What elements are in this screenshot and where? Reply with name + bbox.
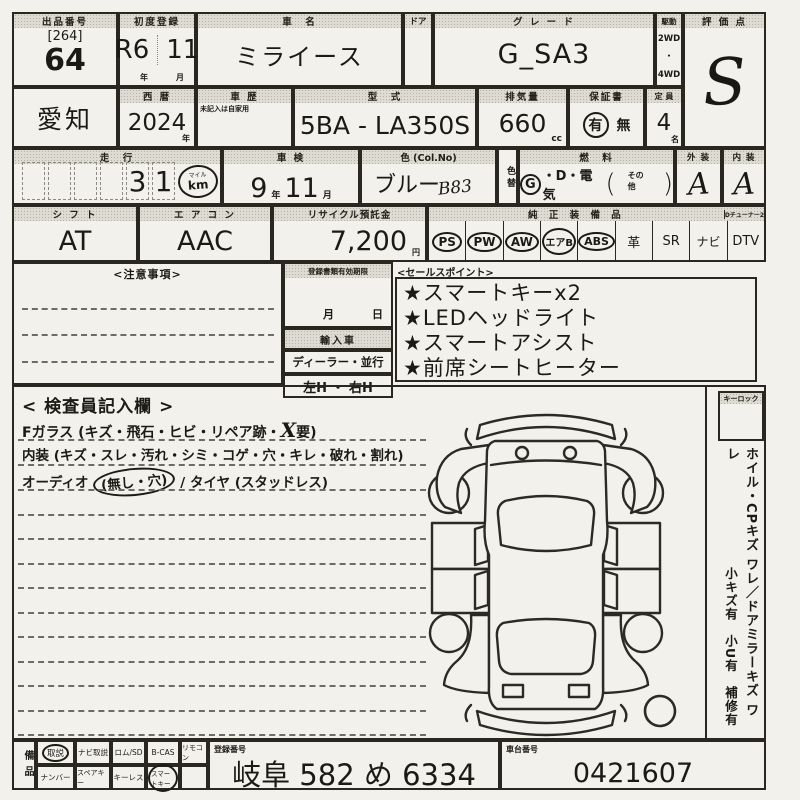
acc-number-plate: ナンバー xyxy=(36,765,75,790)
door-header: ドア xyxy=(405,14,431,28)
model-code: 5BA - LA350S xyxy=(295,103,475,147)
mileage-digit-box xyxy=(100,162,123,200)
aircon-header: エ ア コ ン xyxy=(140,207,270,221)
color-change-label: 色替 xyxy=(504,166,517,190)
km-unit-circle: マイル km xyxy=(177,163,219,199)
fuel-paren-open: ( xyxy=(605,169,615,199)
blank-rule xyxy=(18,710,426,712)
fuel-paren-close: ) xyxy=(663,169,673,199)
audio-circled-selection: (無し・穴) xyxy=(92,464,176,499)
car-name-header: 車 名 xyxy=(198,14,401,28)
displacement-cell: 排気量 660 cc xyxy=(477,87,568,148)
inspection-year: 9 xyxy=(250,173,267,204)
registration-number-header: 登録番号 xyxy=(214,744,246,755)
fuel-header: 燃 料 xyxy=(520,150,673,164)
equipment-header: 純 正 装 備 品 xyxy=(429,207,724,221)
drive-cell: 駆動 2WD ・ 4WD xyxy=(655,12,683,87)
first-registration-cell: 初度登録 R6 11 年 月 xyxy=(118,12,196,87)
sales-points-area: <セールスポイント> ★スマートキーx2 ★LEDヘッドライト ★スマートアシス… xyxy=(393,262,766,385)
blank-rule xyxy=(18,734,426,736)
history-cell: 車 歴 未記入は自家用 xyxy=(196,87,293,148)
sidebar-note-2: 小キズ有 小U有 補修有 xyxy=(721,567,740,727)
equip-ps: PS xyxy=(429,221,465,262)
blank-rule xyxy=(18,538,426,540)
equip-navi: ナビ xyxy=(689,221,726,262)
blank-rule xyxy=(18,612,426,614)
inspection-cell: 車 検 9 年 11 月 xyxy=(222,148,360,205)
aircon-value: AAC xyxy=(140,221,270,261)
color-code-handwritten: B83 xyxy=(437,176,473,199)
acc-navi-manual: ナビ取説 xyxy=(75,740,111,765)
equip-leather: 革 xyxy=(615,221,652,262)
recycle-fee-header: リサイクル預託金 xyxy=(274,207,425,221)
color-change-cell: 色替 xyxy=(497,148,518,205)
warranty-yes-circled: 有 xyxy=(583,112,609,138)
acc-manual: 取説 xyxy=(36,740,75,765)
chassis-number: 0421607 xyxy=(502,742,764,796)
acc-smart-key: スマートキー xyxy=(146,765,180,790)
import-car-cell: 輸入車 xyxy=(283,328,393,350)
accessories-grid: 取説 ナビ取説 ロム/SD B-CAS リモコン ナンバー スペアキー キーレス… xyxy=(36,740,208,790)
recycle-fee-cell: リサイクル預託金 7,200 円 xyxy=(272,205,427,262)
blank-rule xyxy=(18,636,426,638)
keylock-header: キーロック xyxy=(720,393,762,404)
model-header: 型 式 xyxy=(295,89,475,103)
color-cell: 色 (Col.No) ブルー B83 xyxy=(360,148,497,205)
inspection-month-unit: 月 xyxy=(323,188,332,204)
caution-notes-cell: <注意事項> xyxy=(12,262,283,385)
accessories-label-cell: 備品 xyxy=(12,740,36,790)
blank-rule xyxy=(18,563,426,565)
drive-option-2wd: 2WD xyxy=(657,30,681,48)
history-header: 車 歴 xyxy=(198,89,291,103)
grade-header: グ レ ー ド xyxy=(435,14,653,28)
acc-keyless: キーレス xyxy=(111,765,146,790)
displacement-unit: cc xyxy=(551,134,562,144)
equip-sunroof: SR xyxy=(652,221,689,262)
inspector-sidebar: キーロック ホイル・CPキズ ワレ／ドアミラーキズ ワレ 小キズ有 小U有 補修… xyxy=(705,385,766,740)
fuel-cell: 燃 料 G ・D・電気 ( その他 ) xyxy=(518,148,675,205)
exterior-grade-cell: 外 装 A xyxy=(675,148,722,205)
interior-header: 内 装 xyxy=(724,150,764,164)
displacement-header: 排気量 xyxy=(479,89,566,103)
sales-point-item: ★LEDヘッドライト xyxy=(403,306,749,331)
dealer-parallel-cell: ディーラー・並行 xyxy=(283,350,393,374)
dealer-parallel-label: ディーラー・並行 xyxy=(285,352,391,372)
document-validity-cell: 登録書類有効期限 月 日 xyxy=(283,262,393,328)
year-unit: 年 xyxy=(182,133,190,144)
inspection-month: 11 xyxy=(284,173,318,204)
warranty-cell: 保証書 有 無 xyxy=(568,87,645,148)
interior-grade-cell: 内 装 A xyxy=(722,148,766,205)
chassis-number-cell: 車台番号 0421607 xyxy=(500,740,766,790)
hand-circle-mark xyxy=(644,695,677,728)
warranty-no: 無 xyxy=(617,115,631,135)
blank-rule xyxy=(18,439,426,441)
shift-cell: シ フ ト AT xyxy=(12,205,138,262)
region-cell: 愛知 xyxy=(12,87,118,148)
document-validity-header: 登録書類有効期限 xyxy=(285,264,391,278)
equip-pw: PW xyxy=(465,221,502,262)
lot-cell: 出品番号 [264] 64 xyxy=(12,12,118,87)
audio-tire-line: オーディオ (無し・穴) / タイヤ (スタッドレス) xyxy=(22,468,328,496)
car-damage-diagram xyxy=(415,393,710,743)
equip-airbag: エアB xyxy=(540,221,577,262)
region: 愛知 xyxy=(14,89,116,146)
keylock-box: キーロック xyxy=(718,391,764,441)
inspection-header: 車 検 xyxy=(224,150,358,164)
mileage-cell: 走 行 3 1 マイル km xyxy=(12,148,222,205)
registration-number-cell: 登録番号 岐阜 582 め 6334 xyxy=(208,740,500,790)
validity-day-unit: 日 xyxy=(372,306,383,322)
model-cell: 型 式 5BA - LA350S xyxy=(293,87,477,148)
interior-grade: A xyxy=(723,163,764,204)
fuel-gasoline-circled: G xyxy=(520,174,541,195)
blank-rule xyxy=(18,685,426,687)
import-car-header: 輸入車 xyxy=(285,330,391,348)
sales-point-item: ★前席シートヒーター xyxy=(403,356,749,381)
dtv-tuner-header: Dチューナー2 xyxy=(724,210,764,219)
score-cell: 評 価 点 S xyxy=(683,12,766,148)
wheel-rear-left xyxy=(430,614,468,652)
lot-number: 64 xyxy=(14,44,116,78)
equip-dtv: DTV xyxy=(727,221,764,262)
door-cell: ドア xyxy=(403,12,433,87)
first-registration-header: 初度登録 xyxy=(120,14,194,28)
chassis-number-header: 車台番号 xyxy=(506,744,538,755)
exterior-grade: A xyxy=(676,163,722,206)
history-note: 未記入は自家用 xyxy=(198,103,291,115)
capacity-unit: 名 xyxy=(671,134,679,145)
score-value: S xyxy=(682,26,767,140)
blank-rule xyxy=(18,587,426,589)
accessories-label: 備品 xyxy=(20,750,35,782)
first-reg-era-year: R6 xyxy=(115,35,150,65)
color-header: 色 (Col.No) xyxy=(362,150,495,164)
lot-bracket: [264] xyxy=(14,29,116,44)
blank-rule xyxy=(22,334,274,336)
drive-option-4wd: 4WD xyxy=(657,66,681,84)
auction-sheet-scan: { "row1": { "lot_header": "出品番号", "lot_b… xyxy=(0,0,800,800)
lot-header: 出品番号 xyxy=(14,14,116,28)
blank-rule xyxy=(18,514,426,516)
recycle-fee-unit: 円 xyxy=(412,247,420,258)
interior-check-line: 内装 (キズ・スレ・汚れ・シミ・コゲ・穴・キレ・破れ・割れ) xyxy=(22,444,404,464)
acc-spare-key: スペアキー xyxy=(75,765,111,790)
mileage-digit-1: 3 xyxy=(126,162,149,200)
drive-separator-dot: ・ xyxy=(657,48,681,66)
grade: G_SA3 xyxy=(435,28,653,80)
fuel-options: ・D・電気 xyxy=(543,165,604,203)
mileage-digit-box xyxy=(48,162,71,200)
shift-header: シ フ ト xyxy=(14,207,136,221)
sales-points-box: ★スマートキーx2 ★LEDヘッドライト ★スマートアシスト ★前席シートヒータ… xyxy=(395,277,757,382)
first-reg-year-unit: 年 xyxy=(140,72,148,83)
sales-point-item: ★スマートアシスト xyxy=(403,331,749,356)
equip-aw: AW xyxy=(503,221,540,262)
recycle-fee-value: 7,200 xyxy=(274,221,425,261)
equipment-cell: 純 正 装 備 品 Dチューナー2 PS PW AW エアB ABS 革 SR … xyxy=(427,205,766,262)
validity-month-unit: 月 xyxy=(323,306,334,322)
blank-rule xyxy=(18,489,426,491)
fuel-other-label: その他 xyxy=(628,164,651,192)
wheel-rear-right xyxy=(624,614,662,652)
first-reg-month: 11 xyxy=(157,35,199,65)
mileage-digit-box xyxy=(22,162,45,200)
car-name: ミライース xyxy=(198,28,401,80)
mileage-digit-2: 1 xyxy=(152,162,175,200)
mileage-digit-box xyxy=(74,162,97,200)
acc-remote: リモコン xyxy=(180,740,208,765)
acc-rom-sd: ロム/SD xyxy=(111,740,146,765)
km-unit-label: km xyxy=(188,177,209,190)
capacity-header: 定 員 xyxy=(647,89,681,103)
inspection-year-unit: 年 xyxy=(271,188,280,204)
blank-rule xyxy=(18,661,426,663)
car-name-cell: 車 名 ミライース xyxy=(196,12,403,87)
acc-empty xyxy=(180,765,208,790)
capacity-cell: 定 員 4 名 xyxy=(645,87,683,148)
year-cell: 西 暦 2024 年 xyxy=(118,87,196,148)
equip-abs: ABS xyxy=(577,221,614,262)
aircon-cell: エ ア コ ン AAC xyxy=(138,205,272,262)
year-header: 西 暦 xyxy=(120,89,194,103)
blank-rule xyxy=(22,361,274,363)
first-reg-month-unit: 月 xyxy=(176,72,184,83)
inspector-title: < 検査員記入欄 > xyxy=(22,392,174,417)
sales-point-item: ★スマートキーx2 xyxy=(403,281,749,306)
blank-rule xyxy=(18,464,426,466)
drive-header: 駆動 xyxy=(657,14,681,28)
acc-bcas: B-CAS xyxy=(146,740,180,765)
blank-rule xyxy=(22,308,274,310)
warranty-header: 保証書 xyxy=(570,89,643,103)
registration-number: 岐阜 582 め 6334 xyxy=(210,742,498,796)
shift-value: AT xyxy=(14,221,136,261)
grade-cell: グ レ ー ド G_SA3 xyxy=(433,12,655,87)
caution-notes-title: <注意事項> xyxy=(14,266,281,282)
color-value: ブルー xyxy=(374,167,440,199)
